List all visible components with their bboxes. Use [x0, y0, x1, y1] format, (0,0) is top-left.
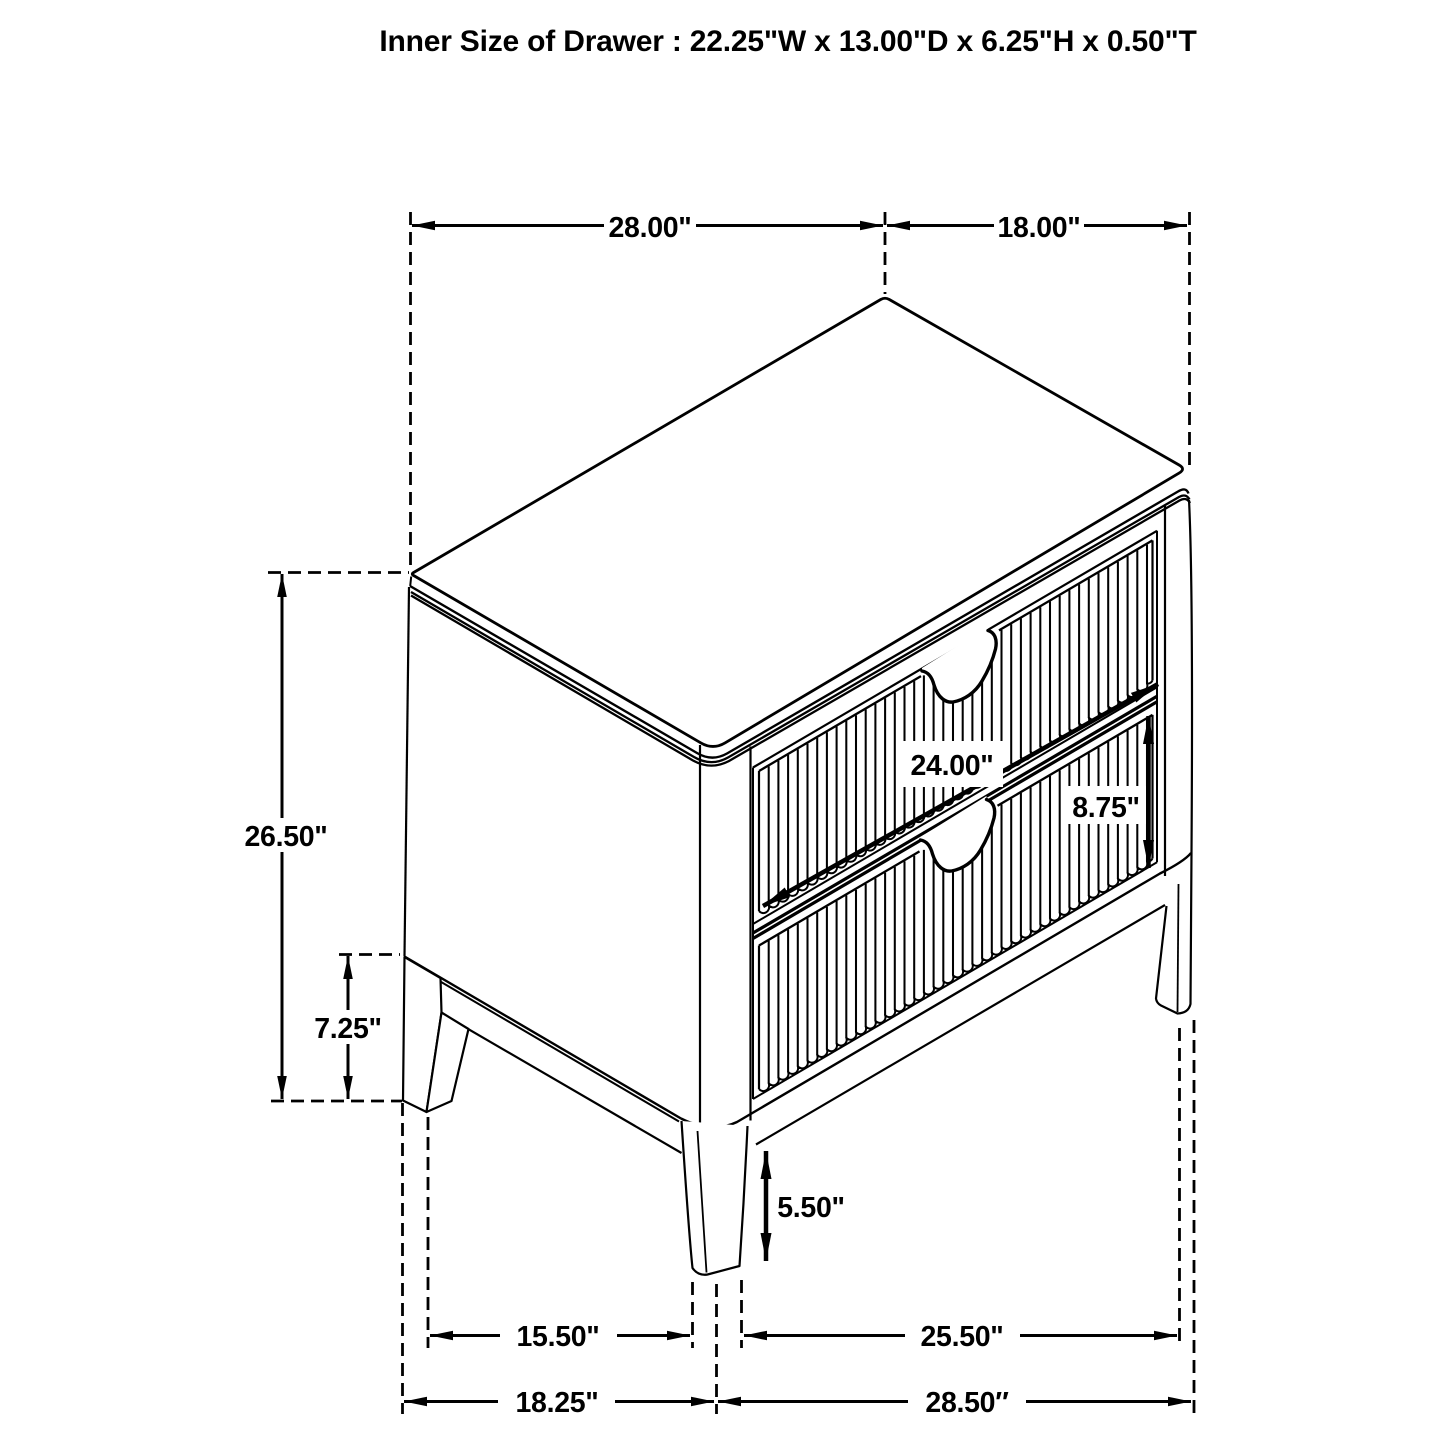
- svg-text:8.75": 8.75": [1072, 792, 1139, 824]
- svg-text:7.25": 7.25": [314, 1013, 381, 1045]
- svg-text:28.50″: 28.50″: [925, 1387, 1009, 1419]
- svg-text:28.00": 28.00": [608, 212, 691, 244]
- svg-text:5.50": 5.50": [777, 1192, 844, 1224]
- svg-text:18.00": 18.00": [997, 212, 1080, 244]
- svg-text:26.50": 26.50": [244, 821, 327, 853]
- svg-text:25.50": 25.50": [920, 1321, 1003, 1353]
- svg-text:Inner Size of Drawer : 22.25"W: Inner Size of Drawer : 22.25"W x 13.00"D…: [379, 25, 1196, 58]
- svg-text:18.25": 18.25": [515, 1387, 598, 1419]
- svg-text:24.00": 24.00": [910, 750, 993, 782]
- svg-text:15.50": 15.50": [516, 1321, 599, 1353]
